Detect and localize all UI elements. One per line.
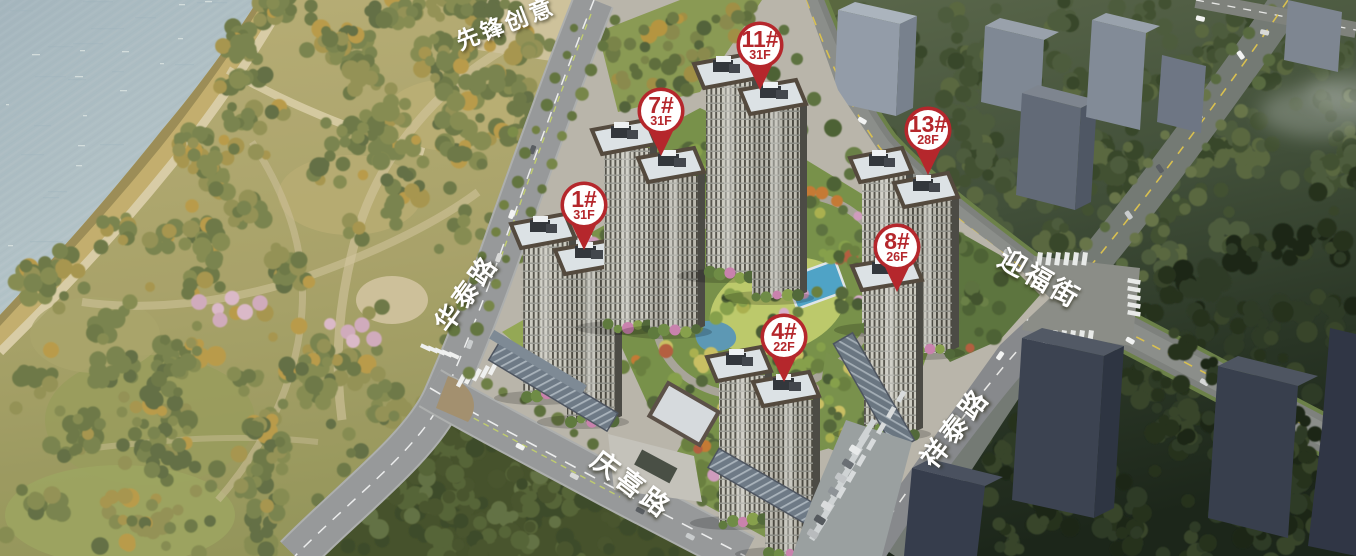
svg-text:26F: 26F <box>886 250 908 264</box>
svg-text:31F: 31F <box>650 114 672 128</box>
svg-text:22F: 22F <box>773 340 795 354</box>
svg-text:28F: 28F <box>917 133 939 147</box>
svg-text:31F: 31F <box>573 208 595 222</box>
svg-text:31F: 31F <box>749 48 771 62</box>
